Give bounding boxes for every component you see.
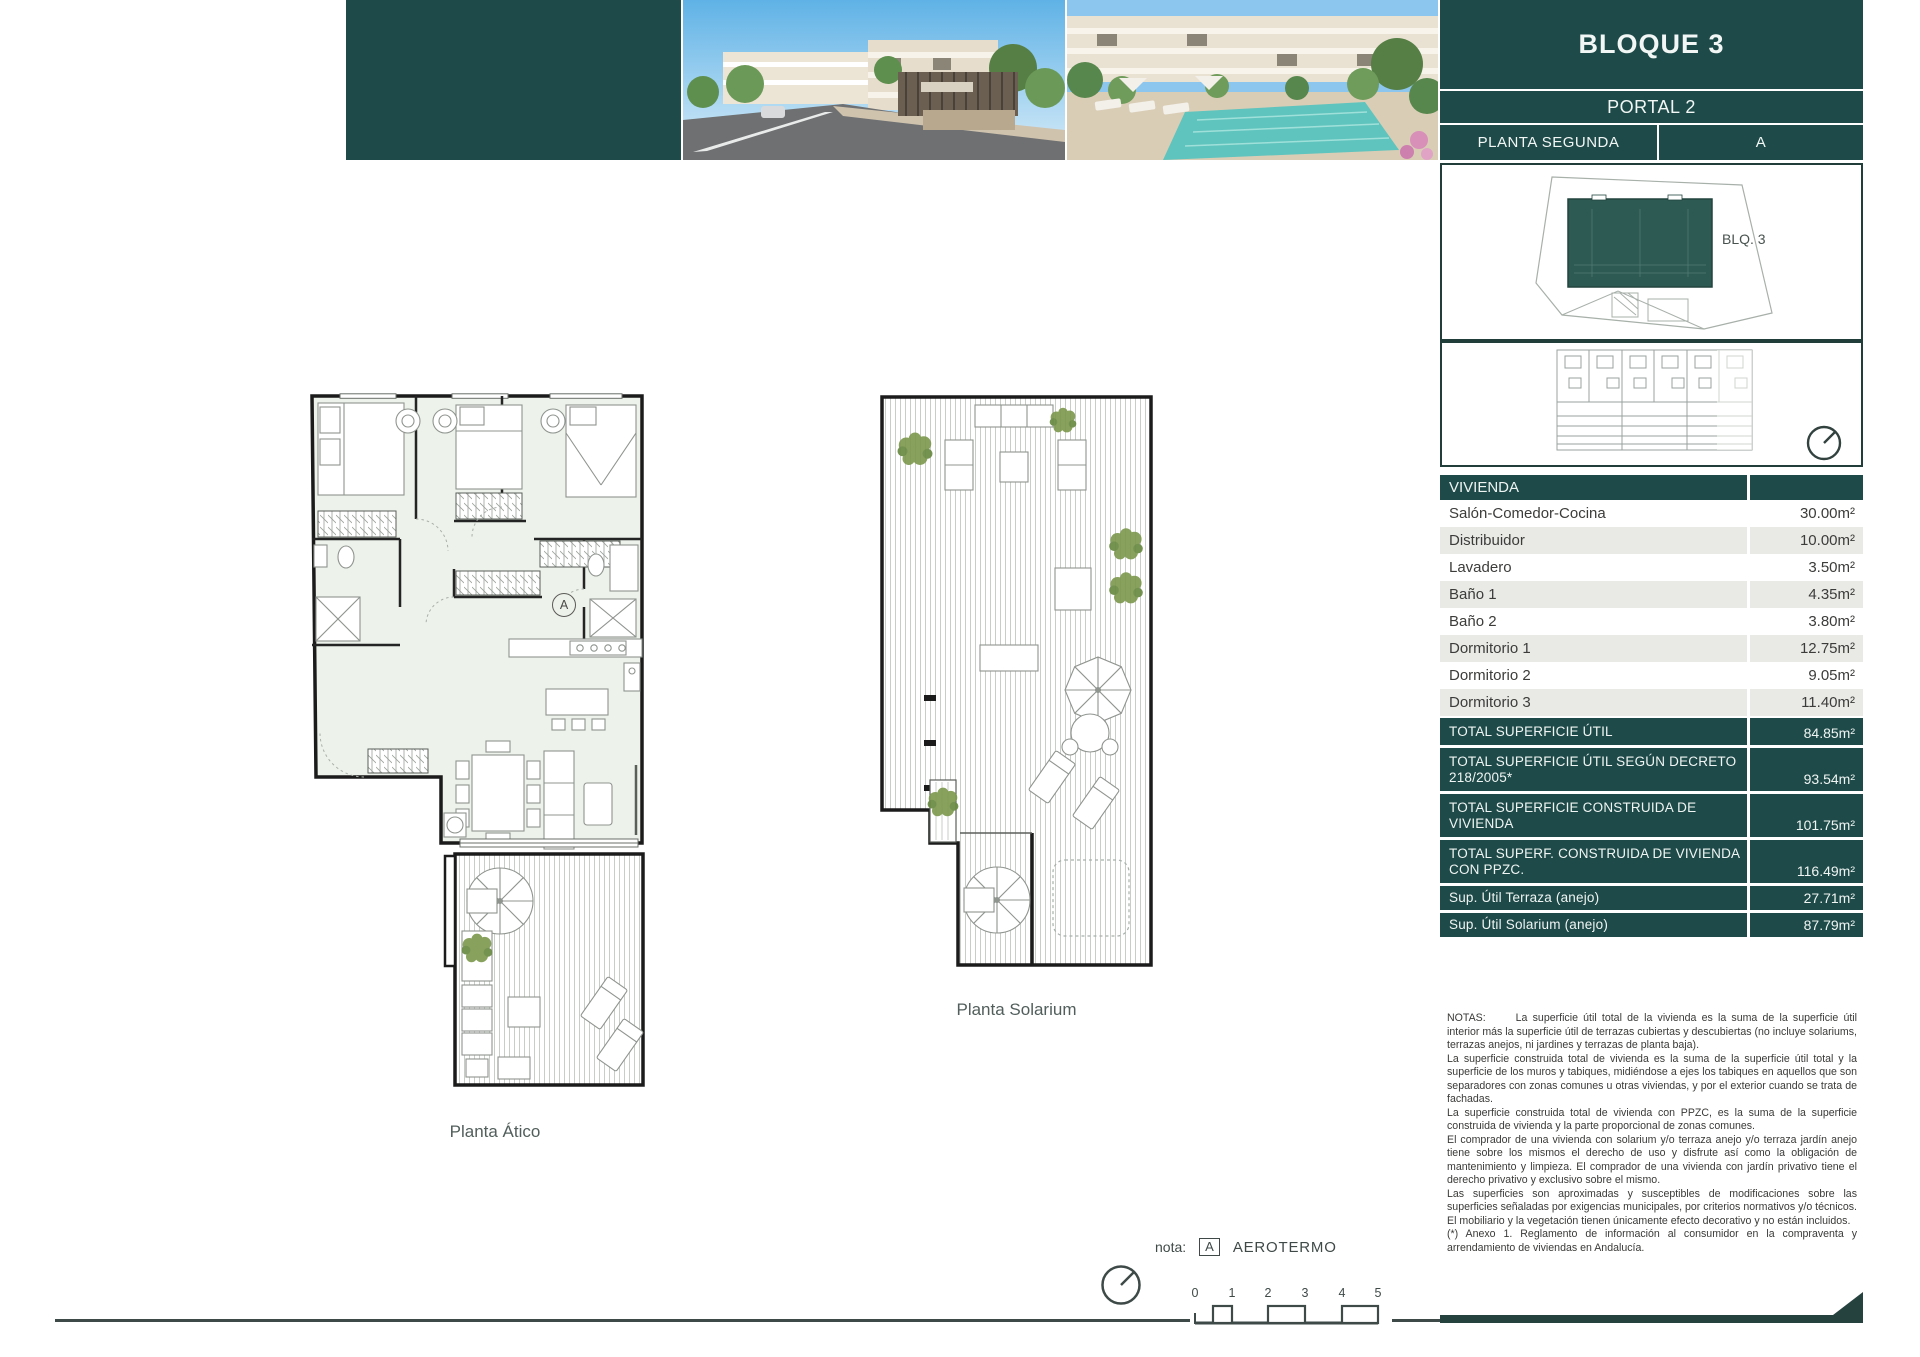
- floor-plan-atico: [304, 393, 650, 1093]
- table-row: Dormitorio 112.75m²: [1440, 635, 1863, 662]
- note-paragraph: El comprador de una vivienda con solariu…: [1447, 1134, 1857, 1188]
- aerotermo-marker: A: [552, 593, 576, 617]
- table-row: Baño 14.35m²: [1440, 581, 1863, 608]
- brand-color-block: [346, 0, 681, 160]
- site-building-label: BLQ. 3: [1722, 231, 1766, 247]
- info-panel: BLOQUE 3 PORTAL 2 PLANTA SEGUNDA A: [1440, 0, 1863, 1357]
- nota-label: nota:: [1155, 1239, 1186, 1255]
- plan-label-atico: Planta Ático: [330, 1122, 660, 1142]
- floor-plan-solarium: [880, 395, 1153, 967]
- aerotermo-key-box: A: [1199, 1238, 1220, 1256]
- scale-bar: 0 1 2 3 4 5: [1180, 1286, 1400, 1332]
- note-paragraph: La superficie útil total de la vivienda …: [1447, 1012, 1857, 1051]
- note-paragraph: Las superficies son aproximadas y suscep…: [1447, 1188, 1857, 1229]
- site-plan-inset: BLQ. 3: [1440, 163, 1863, 341]
- table-row: Salón-Comedor-Cocina30.00m²: [1440, 500, 1863, 527]
- north-arrow-icon: [1098, 1262, 1144, 1308]
- vivienda-title: VIVIENDA: [1440, 475, 1750, 500]
- note-paragraph: La superficie construida total de vivien…: [1447, 1053, 1857, 1107]
- table-row: Dormitorio 311.40m²: [1440, 689, 1863, 716]
- total-row: TOTAL SUPERFICIE ÚTIL SEGÚN DECRETO 218/…: [1440, 748, 1863, 791]
- table-row: Dormitorio 29.05m²: [1440, 662, 1863, 689]
- unit-label: A: [1659, 125, 1863, 160]
- table-row: Distribuidor10.00m²: [1440, 527, 1863, 554]
- notes-block: NOTAS:La superficie útil total de la viv…: [1447, 1012, 1857, 1255]
- note-paragraph: (*) Anexo 1. Reglamento de información a…: [1447, 1228, 1857, 1255]
- total-row: Sup. Útil Solarium (anejo)87.79m²: [1440, 913, 1863, 937]
- render-photo-street: [683, 0, 1065, 160]
- floor-unit-row: PLANTA SEGUNDA A: [1440, 125, 1863, 160]
- note-paragraph: La superficie construida total de vivien…: [1447, 1107, 1857, 1134]
- render-photo-pool: [1067, 0, 1438, 160]
- aerotermo-note: nota: A AEROTERMO: [1155, 1238, 1337, 1256]
- footer-rule-left: [55, 1319, 1190, 1322]
- key-plan-inset: [1440, 341, 1863, 467]
- total-row: TOTAL SUPERF. CONSTRUIDA DE VIVIENDA CON…: [1440, 840, 1863, 883]
- block-title: BLOQUE 3: [1440, 0, 1863, 91]
- plan-label-solarium: Planta Solarium: [880, 1000, 1153, 1020]
- vivienda-table-header: VIVIENDA: [1440, 475, 1863, 500]
- table-row: Lavadero3.50m²: [1440, 554, 1863, 581]
- total-row: TOTAL SUPERFICIE CONSTRUIDA DE VIVIENDA1…: [1440, 794, 1863, 837]
- portal-title: PORTAL 2: [1440, 91, 1863, 125]
- north-arrow-icon: [1808, 427, 1840, 459]
- total-row: Sup. Útil Terraza (anejo)27.71m²: [1440, 886, 1863, 910]
- table-row: Baño 23.80m²: [1440, 608, 1863, 635]
- aerotermo-label: AEROTERMO: [1233, 1239, 1337, 1256]
- panel-bottom-rule: [1440, 1290, 1863, 1326]
- floor-label: PLANTA SEGUNDA: [1440, 125, 1659, 160]
- notes-title: NOTAS:: [1447, 1012, 1486, 1024]
- total-row: TOTAL SUPERFICIE ÚTIL84.85m²: [1440, 718, 1863, 745]
